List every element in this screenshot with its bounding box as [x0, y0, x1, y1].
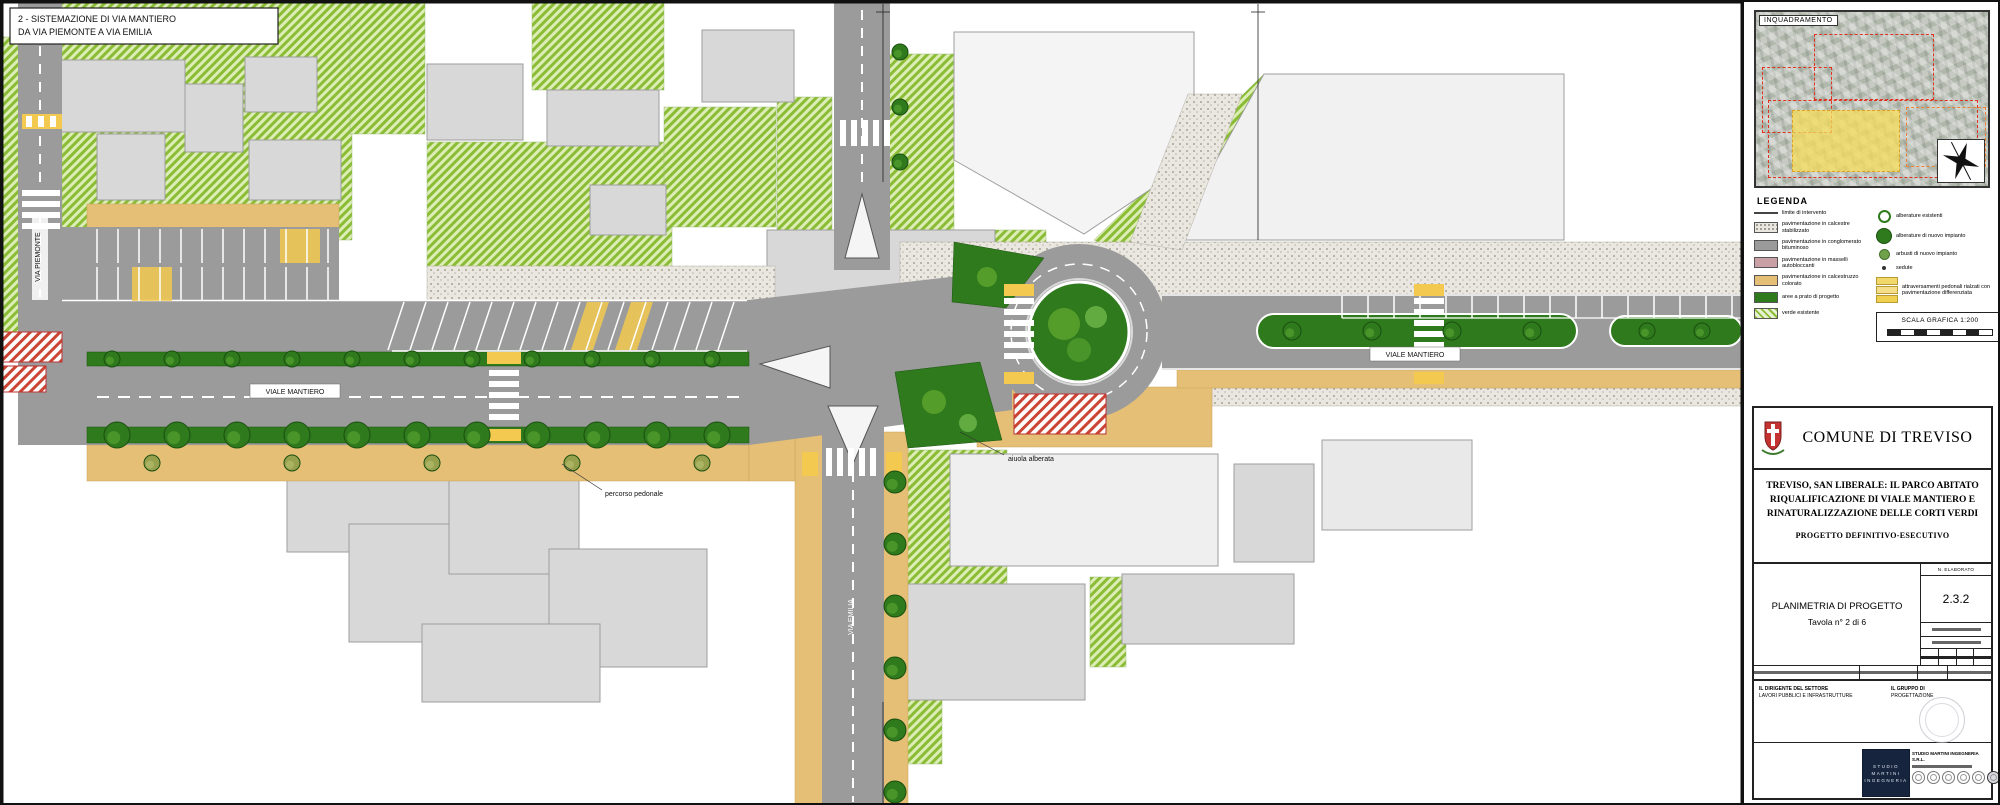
legend-item: sedute — [1876, 265, 1996, 271]
project-title-line1: TREVISO, SAN LIBERALE: IL PARCO ABITATO — [1754, 480, 1991, 494]
scale-cell — [1921, 623, 1991, 637]
seat-icon — [1882, 266, 1886, 270]
revision-cell — [1754, 666, 1860, 679]
stamp-icon — [1927, 771, 1940, 784]
revision-strip — [1754, 666, 1991, 681]
treviso-coat-of-arms — [1758, 416, 1788, 460]
round-stamp — [1919, 697, 1965, 743]
yellow-swatch — [1876, 277, 1898, 285]
legend-item: arbusti di nuovo impianto — [1876, 249, 1996, 260]
professional-stamps — [1912, 771, 2000, 784]
legend-title: LEGENDA — [1757, 196, 1808, 206]
title-panel: INQUADRAMENTO LEGENDA limite di — [1742, 2, 2000, 805]
revision-cell — [1860, 666, 1918, 679]
legend-label: aree a prato di progetto — [1782, 294, 1839, 300]
sheet-number: Tavola n° 2 di 6 — [1754, 615, 1920, 629]
firm-address-bar — [1912, 765, 1972, 768]
signature-left-subtitle: LAVORI PUBBLICI E INFRASTRUTTURE — [1759, 693, 1869, 700]
sheet-note: 2 - SISTEMAZIONE DI VIA MANTIERO DA VIA … — [10, 8, 278, 44]
signatures-row: IL DIRIGENTE DEL SETTORE LAVORI PUBBLICI… — [1754, 681, 1991, 743]
location-inset-map: INQUADRAMENTO — [1754, 10, 1990, 188]
scale-bar — [1887, 329, 1993, 336]
street-label-left: VIA PIEMONTE — [35, 232, 42, 282]
studio-martini-logo: STUDIO MARTINI INGEGNERIA — [1862, 749, 1910, 797]
legend-item: pavimentazione in calcestre stabilizzato — [1754, 221, 1876, 234]
existing-green-swatch — [1754, 308, 1778, 319]
annotation-pedestrian-path: percorso pedonale — [605, 491, 663, 498]
note-line-2: DA VIA PIEMONTE A VIA EMILIA — [18, 27, 152, 37]
new-tree-icon — [1876, 228, 1892, 244]
revision-cell — [1948, 666, 1991, 679]
project-title-line2: RIQUALIFICAZIONE DI VIALE MANTIERO E — [1754, 494, 1991, 508]
legend-item: pavimentazione in masselli autobloccanti — [1754, 257, 1876, 270]
north-arrow — [1937, 139, 1985, 183]
graphic-scale: SCALA GRAFICA 1:200 — [1876, 312, 2000, 341]
legend-label: pavimentazione in masselli autobloccanti — [1782, 257, 1876, 270]
legend-item: pavimentazione in conglomerato bituminos… — [1754, 239, 1876, 252]
elaborato-header: N. ELABORATO — [1921, 564, 1991, 576]
firm-name: STUDIO MARTINI INGEGNERIA S.R.L. — [1912, 751, 1990, 768]
graphic-scale-label: SCALA GRAFICA 1:200 — [1881, 317, 1999, 324]
logo-line: INGEGNERIA — [1863, 778, 1909, 783]
drawing-info-row: PLANIMETRIA DI PROGETTO Tavola n° 2 di 6… — [1754, 564, 1991, 666]
legend-item: limite di intervento — [1754, 210, 1876, 216]
legend: limite di intervento pavimentazione in c… — [1754, 210, 1996, 342]
legend-label: pavimentazione in conglomerato bituminos… — [1782, 239, 1876, 252]
signature-left-title: IL DIRIGENTE DEL SETTORE — [1759, 686, 1869, 693]
municipality-title: COMUNE DI TREVISO — [1788, 429, 1987, 447]
project-title: TREVISO, SAN LIBERALE: IL PARCO ABITATO … — [1754, 470, 1991, 564]
legend-label: alberature esistenti — [1896, 213, 1942, 219]
legend-label: attraversamenti pedonali rialzati con pa… — [1902, 284, 1996, 297]
legend-item: alberature esistenti — [1876, 210, 1996, 223]
yellow-swatch — [1876, 286, 1898, 294]
drawing-title-cell: PLANIMETRIA DI PROGETTO Tavola n° 2 di 6 — [1754, 564, 1921, 665]
order-emblem-icon — [1987, 771, 2000, 784]
stamp-icon — [1912, 771, 1925, 784]
firm-name-text: STUDIO MARTINI INGEGNERIA S.R.L. — [1912, 751, 1990, 763]
firm-row: STUDIO MARTINI INGEGNERIA STUDIO MARTINI… — [1754, 743, 1991, 798]
drawing-sheet: VIALE MANTIERO VIALE MANTIERO VIA PIEMON… — [0, 0, 2000, 805]
project-title-line3: RINATURALIZZAZIONE DELLE CORTI VERDI — [1754, 508, 1991, 522]
legend-label: verde esistente — [1782, 310, 1819, 316]
stamp-icon — [1972, 771, 1985, 784]
boundary-line-swatch — [1754, 212, 1778, 214]
stamp-icon — [1957, 771, 1970, 784]
street-label-south: VIA EMILIA — [848, 599, 855, 635]
inset-current-sheet-area — [1792, 110, 1900, 172]
road-label-east: VIALE MANTIERO — [1386, 352, 1445, 359]
legend-item: aree a prato di progetto — [1754, 292, 1876, 303]
legend-label: pavimentazione in calcestre stabilizzato — [1782, 221, 1876, 234]
shrub-icon — [1879, 249, 1890, 260]
revision-cell — [1918, 666, 1948, 679]
inset-extent-north — [1814, 34, 1934, 100]
legend-item-raised-crossing: attraversamenti pedonali rialzati con pa… — [1876, 276, 1996, 304]
inset-title: INQUADRAMENTO — [1759, 15, 1838, 26]
gravel-swatch — [1754, 222, 1778, 233]
pavers-swatch — [1754, 257, 1778, 268]
legend-item: alberature di nuovo impianto — [1876, 228, 1996, 244]
annotation-planted-bed: aiuola alberata — [1008, 456, 1054, 463]
legend-item: pavimentazione in calcestruzzo colorato — [1754, 274, 1876, 287]
stamp-icon — [1942, 771, 1955, 784]
date-cell — [1921, 637, 1991, 649]
elaborato-code: 2.3.2 — [1921, 576, 1991, 623]
title-block: COMUNE DI TREVISO TREVISO, SAN LIBERALE:… — [1752, 406, 1993, 800]
elaborato-cell: N. ELABORATO 2.3.2 — [1921, 564, 1991, 665]
asphalt-swatch — [1754, 240, 1778, 251]
revision-mini-cells — [1921, 649, 1991, 665]
sand-swatch — [1754, 275, 1778, 286]
note-line-1: 2 - SISTEMAZIONE DI VIA MANTIERO — [18, 14, 176, 24]
logo-line: MARTINI — [1863, 771, 1909, 776]
legend-label: arbusti di nuovo impianto — [1896, 251, 1957, 257]
legend-label: alberature di nuovo impianto — [1896, 233, 1965, 239]
legend-item: verde esistente — [1754, 308, 1876, 319]
signature-left: IL DIRIGENTE DEL SETTORE LAVORI PUBBLICI… — [1759, 686, 1869, 700]
legend-label: limite di intervento — [1782, 210, 1826, 216]
signature-right-title: IL GRUPPO DI — [1891, 686, 1986, 693]
legend-label: pavimentazione in calcestruzzo colorato — [1782, 274, 1876, 287]
plan-map: VIALE MANTIERO VIALE MANTIERO VIA PIEMON… — [2, 2, 1742, 805]
legend-label: sedute — [1896, 265, 1913, 271]
yellow-swatch — [1876, 295, 1898, 303]
existing-tree-icon — [1878, 210, 1891, 223]
project-phase: PROGETTO DEFINITIVO-ESECUTIVO — [1754, 530, 1991, 542]
title-block-header: COMUNE DI TREVISO — [1754, 408, 1991, 470]
road-label-west: VIALE MANTIERO — [266, 389, 325, 396]
logo-line: STUDIO — [1863, 764, 1909, 769]
grass-swatch — [1754, 292, 1778, 303]
drawing-title: PLANIMETRIA DI PROGETTO — [1754, 599, 1920, 615]
